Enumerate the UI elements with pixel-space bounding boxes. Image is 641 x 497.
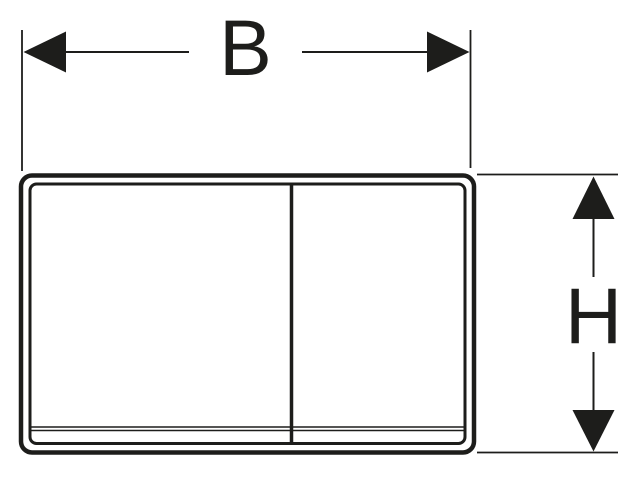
- width-dimension-label: B: [219, 3, 272, 92]
- height-dimension-label: H: [565, 271, 622, 360]
- technical-drawing-canvas: B H: [0, 0, 641, 497]
- drawing-background: [0, 0, 641, 497]
- flush-plate-dimension-diagram: B H: [0, 0, 641, 497]
